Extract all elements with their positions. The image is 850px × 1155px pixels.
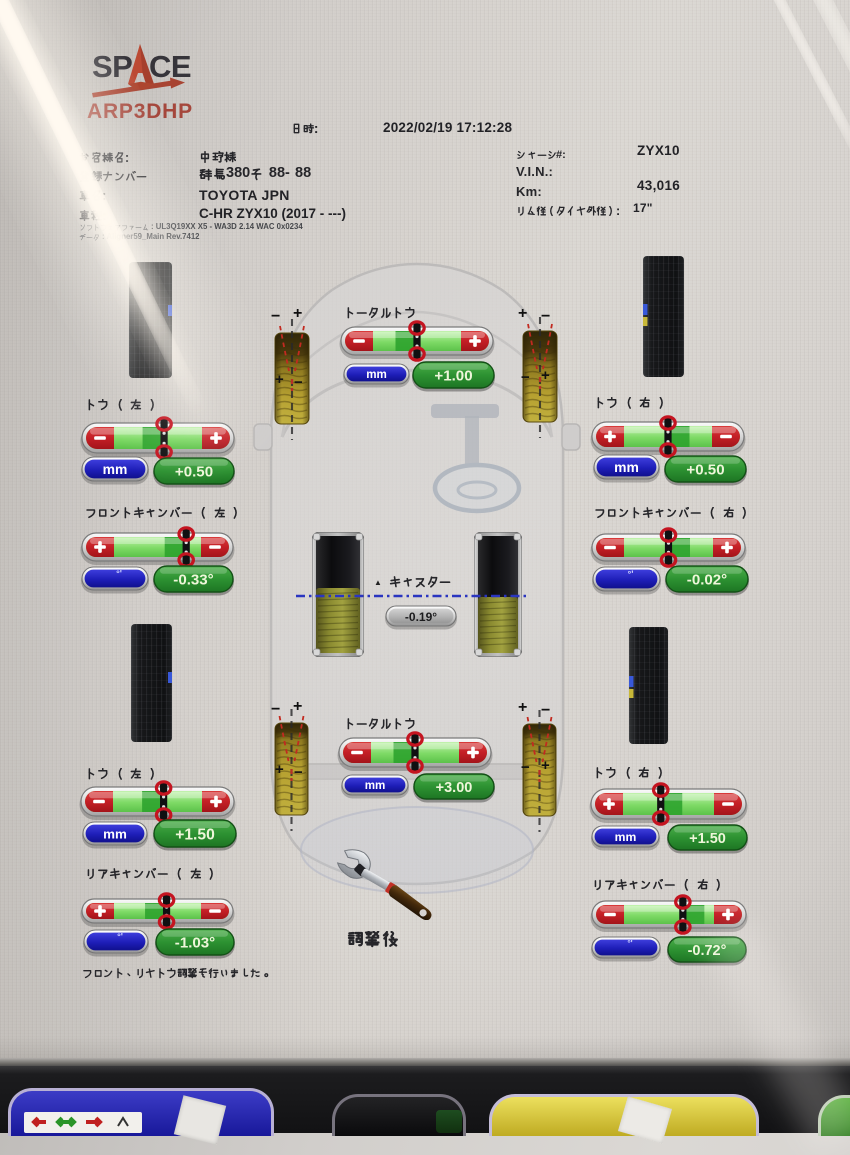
svg-text:°': °' [627,569,633,580]
svg-text:+3.00: +3.00 [436,780,473,796]
svg-text:mm: mm [103,826,127,841]
svg-text:mm: mm [103,461,128,477]
svg-text:-0.19°: -0.19° [405,610,437,624]
svg-text:°': °' [627,938,632,948]
svg-text:+1.00: +1.00 [434,368,472,385]
svg-text:SP: SP [92,49,132,84]
svg-text:mm: mm [615,830,637,844]
svg-text:CE: CE [149,49,191,84]
svg-text:+0.50: +0.50 [686,462,724,479]
svg-text:-1.03°: -1.03° [175,935,215,952]
svg-text:-0.02°: -0.02° [687,572,727,589]
svg-text:-0.33°: -0.33° [173,572,213,589]
svg-text:-0.72°: -0.72° [688,943,727,959]
svg-text:mm: mm [614,459,639,475]
svg-text:mm: mm [366,368,387,381]
svg-text:mm: mm [365,779,386,792]
svg-text:°': °' [117,932,123,942]
svg-text:+0.50: +0.50 [175,464,213,481]
svg-text:+1.50: +1.50 [175,826,215,843]
svg-text:°': °' [116,569,122,579]
svg-text:+1.50: +1.50 [689,831,726,847]
